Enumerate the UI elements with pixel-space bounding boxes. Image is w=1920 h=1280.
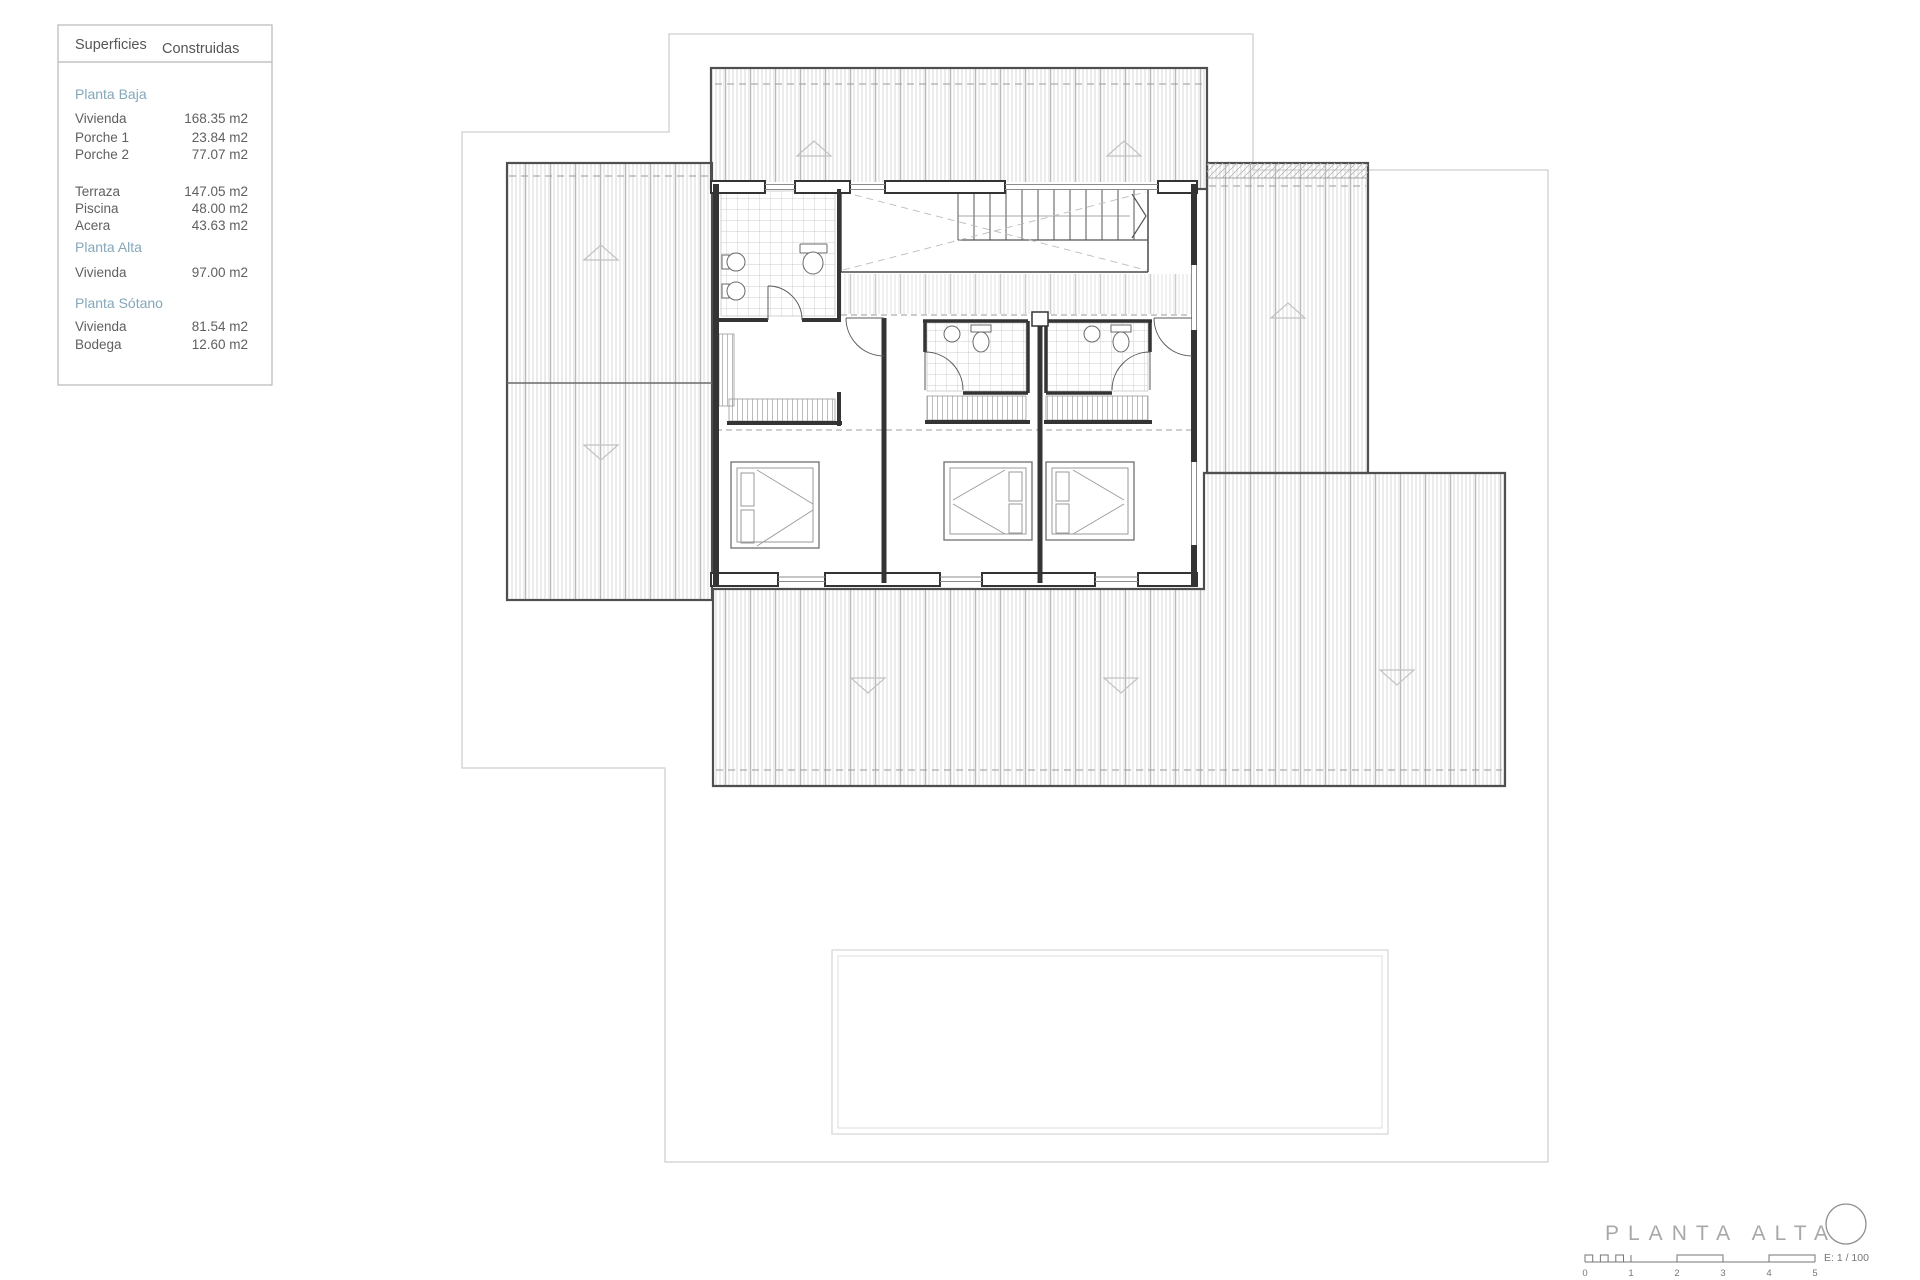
- roof-left-panel: [507, 163, 712, 600]
- legend-row-value: 97.00 m2: [192, 265, 248, 280]
- title-block: PLANTA ALTA 0 1 2 3 4 5 E: 1 / 100: [1582, 1204, 1869, 1279]
- toilet-icon: [971, 325, 991, 332]
- sink-icon: [1084, 326, 1100, 342]
- drawing-sheet: Superficies Construidas Planta Baja Vivi…: [0, 0, 1920, 1280]
- scale-ratio-label: E: 1 / 100: [1824, 1252, 1869, 1264]
- legend-row-label: Vivienda: [75, 111, 127, 126]
- legend-row-value: 147.05 m2: [184, 184, 248, 199]
- scale-bar: [1585, 1255, 1815, 1262]
- legend-row-value: 12.60 m2: [192, 337, 248, 352]
- scale-tick: 2: [1674, 1268, 1679, 1279]
- legend-panel: Superficies Construidas Planta Baja Vivi…: [58, 25, 272, 385]
- wardrobe-bedroom-3: [1046, 396, 1148, 420]
- legend-row-label: Porche 2: [75, 147, 129, 162]
- legend-section-planta-sotano: Planta Sótano: [75, 295, 163, 311]
- wall-cap: [1032, 312, 1048, 326]
- legend-row-value: 43.63 m2: [192, 218, 248, 233]
- legend-row-value: 168.35 m2: [184, 111, 248, 126]
- roof-top-band: [711, 68, 1207, 189]
- gallery-hatch-band: [841, 274, 1192, 314]
- page-title: PLANTA ALTA: [1605, 1222, 1837, 1245]
- scale-tick: 4: [1766, 1268, 1771, 1279]
- legend-section-planta-alta: Planta Alta: [75, 239, 142, 255]
- toilet-icon: [727, 253, 745, 271]
- swimming-pool-outline: [832, 950, 1388, 1134]
- legend-row-label: Terraza: [75, 184, 121, 199]
- scale-tick: 5: [1812, 1268, 1817, 1279]
- bidet-icon: [727, 282, 745, 300]
- legend-row-value: 77.07 m2: [192, 147, 248, 162]
- legend-col-construidas: Construidas: [162, 41, 239, 57]
- legend-row-value: 81.54 m2: [192, 319, 248, 334]
- legend-row-label: Piscina: [75, 201, 119, 216]
- legend-section-planta-baja: Planta Baja: [75, 86, 147, 102]
- wardrobe-bedroom-2: [927, 396, 1026, 420]
- legend-row-label: Vivienda: [75, 265, 127, 280]
- legend-col-superficies: Superficies: [75, 37, 147, 53]
- scale-tick: 3: [1720, 1268, 1725, 1279]
- legend-row-label: Porche 1: [75, 130, 129, 145]
- roof-right-panel: [1207, 163, 1368, 473]
- legend-row-label: Vivienda: [75, 319, 127, 334]
- scale-tick: 0: [1582, 1268, 1587, 1279]
- scale-tick: 1: [1628, 1268, 1633, 1279]
- toilet-icon: [1111, 325, 1131, 332]
- floor-plan-svg: Superficies Construidas Planta Baja Vivi…: [0, 0, 1920, 1280]
- legend-row-label: Acera: [75, 218, 111, 233]
- legend-row-label: Bodega: [75, 337, 122, 352]
- sink-icon: [944, 326, 960, 342]
- legend-row-value: 23.84 m2: [192, 130, 248, 145]
- legend-row-value: 48.00 m2: [192, 201, 248, 216]
